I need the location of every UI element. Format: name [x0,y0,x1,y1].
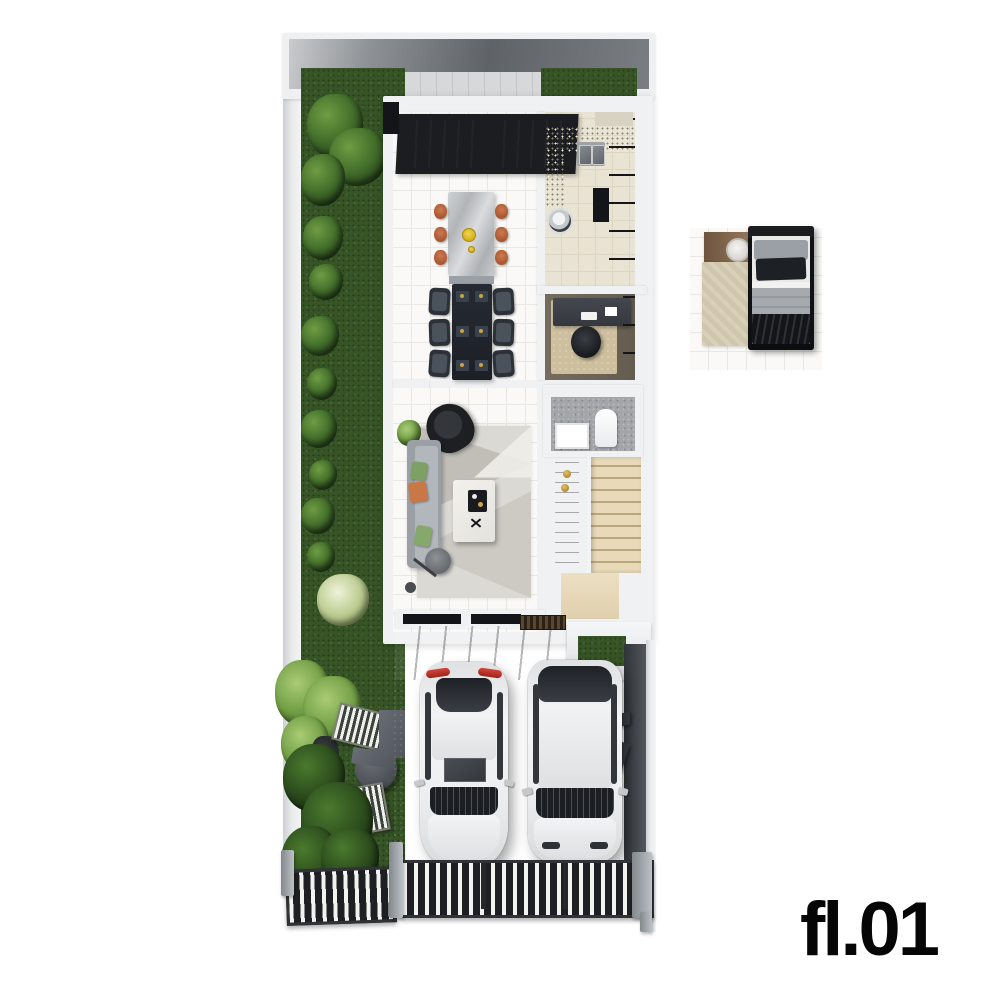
pantry-counter [595,112,633,126]
front-window [471,614,521,624]
hedge-bush [301,316,339,356]
floor-label: fl.01 [800,886,996,972]
floor-lamp-base [405,582,416,593]
white-suv [528,660,622,862]
single-bed [748,226,814,350]
sedan-hood [428,815,500,861]
paper [605,307,617,316]
staircase [587,457,641,573]
glass-panel [402,120,485,168]
house-body [383,96,653,644]
green-pillow [410,461,428,481]
washing-machine [547,208,573,234]
stair-landing [561,573,619,619]
dining-chair [492,349,515,377]
gate-post-foot [640,912,652,932]
hedge-bush [307,542,335,572]
bar-stool [495,204,508,219]
study-desk [553,298,631,326]
garage-right-wall [624,644,646,878]
suv-hood [534,818,616,858]
bar-stool [495,227,508,242]
suv-side-glass [611,684,617,784]
driveway-grate-left [285,866,397,926]
placemat [456,326,469,337]
hedge-bush [307,368,337,400]
suv-roof [538,704,612,788]
placemat [475,360,488,371]
hedge-bush [309,264,343,300]
bar-stool [434,227,447,242]
placemat [475,326,488,337]
dining-chair [428,287,450,315]
wood-doormat [520,615,566,630]
bathroom-walls [543,385,643,457]
gate-post [632,852,652,918]
hedge-bush [301,154,345,206]
kitchen-counter-left [545,152,565,206]
suv-windshield [536,788,614,818]
black-duvet [752,314,810,346]
gold-sconce [563,470,571,478]
bedroom-detail [690,222,822,370]
office-chair [571,326,601,358]
green-pillow [413,525,432,547]
sedan-rear-window [436,678,492,712]
bathroom-sink [555,423,589,449]
placemat [456,291,469,302]
hedge-bush [309,460,337,490]
interior-wall [537,286,647,294]
back-patio-hedge-right [541,68,637,99]
island-bench [449,276,494,284]
gold-sconce [561,484,569,492]
hedge-bush [303,216,343,260]
placemat [475,291,488,302]
bar-stool [495,250,508,265]
dining-chair [429,319,451,347]
sedan-roof [432,714,496,760]
bar-stool [434,204,447,219]
sink-basin [579,145,592,165]
pale-tree-canopy [317,574,369,626]
tray-item [472,494,477,499]
dining-chair [428,349,451,377]
gray-blanket [752,288,810,316]
orange-pillow [408,481,429,503]
sink-basin [592,145,605,165]
dining-table [452,284,492,380]
white-sedan [420,662,508,868]
suv-hood-vent [542,842,560,849]
gate-post [389,842,403,918]
tray-item [478,502,483,507]
fruit-bowl [462,228,476,242]
suv-hood-vent [590,842,608,849]
sedan-side-glass [425,692,431,780]
grate-divider [563,863,568,909]
toilet [595,409,617,447]
suv-side-glass [533,684,539,784]
driveway-grate-right [400,860,654,918]
fruit [468,246,475,253]
placemat [456,360,469,371]
footboard [748,344,814,350]
gate-post [281,850,294,896]
sedan-windshield [430,787,498,815]
black-pillow [756,257,807,281]
wall-stub [393,380,429,388]
back-patio-floor [405,72,541,99]
refrigerator [593,188,609,222]
front-window [403,614,461,624]
sedan-sunroof [444,758,486,782]
hedge-bush [301,410,337,448]
coffee-table [453,480,495,542]
hedge-bush [301,498,335,534]
media-wall [555,458,579,572]
floor-plan-render: fl.01 [0,0,1000,1000]
black-tray [468,490,487,512]
suv-rear-window [538,666,612,702]
grate-divider [481,863,486,909]
side-window [383,102,399,134]
bar-stool [434,250,447,265]
tall-cabinets [609,116,635,286]
sedan-side-glass [497,692,503,780]
keyboard [581,312,597,320]
kitchen-sink [577,142,605,166]
bedside-rug [702,262,748,346]
dining-chair [492,287,514,315]
dining-chair [493,319,515,347]
study-cabinet [623,294,635,380]
round-tray [726,238,750,262]
